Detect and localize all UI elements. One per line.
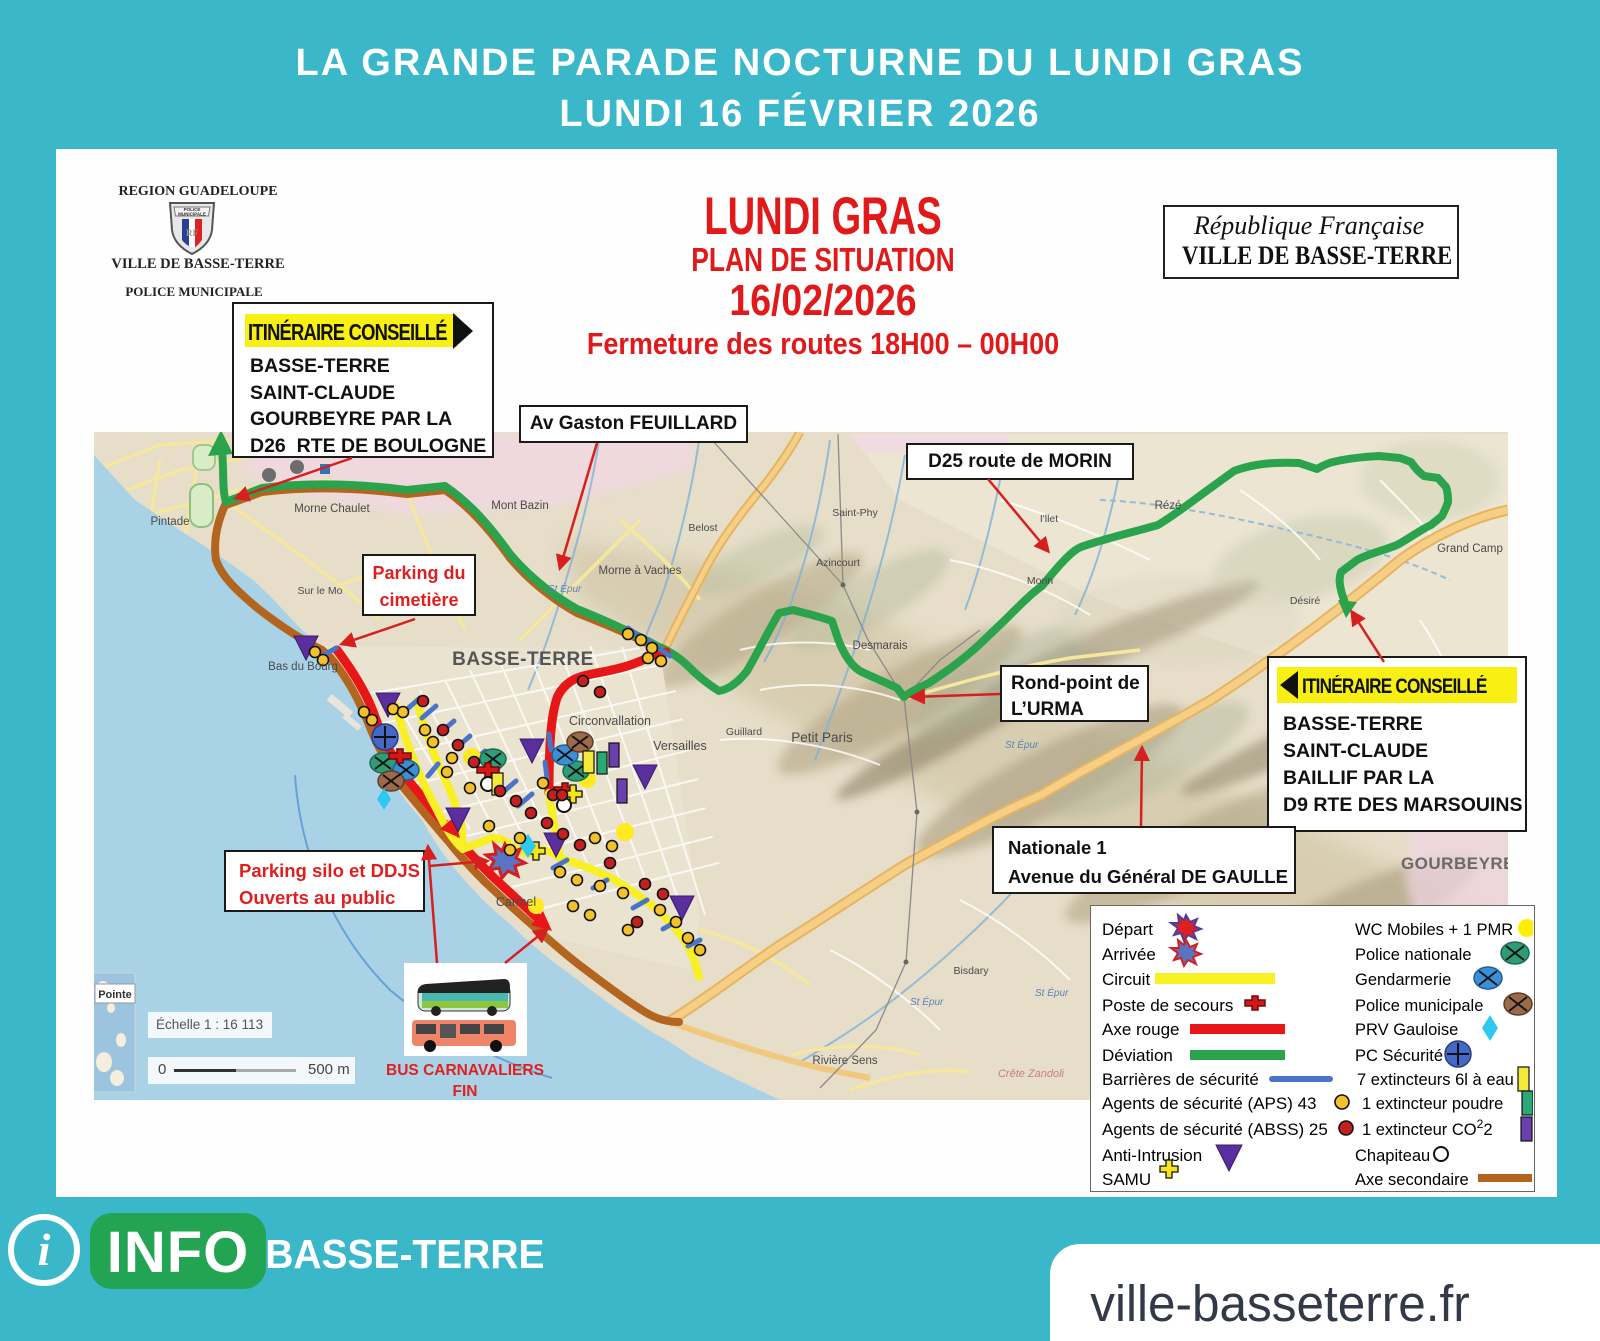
svg-text:Carmel: Carmel bbox=[496, 895, 536, 909]
svg-text:7 extincteurs 6l à eau: 7 extincteurs 6l à eau bbox=[1357, 1071, 1514, 1089]
svg-text:Rivière Sens: Rivière Sens bbox=[812, 1055, 877, 1067]
svg-text:Circonvallation: Circonvallation bbox=[569, 714, 651, 728]
svg-text:Versailles: Versailles bbox=[653, 739, 707, 753]
svg-text:Guillard: Guillard bbox=[726, 726, 762, 738]
svg-text:Belost: Belost bbox=[688, 522, 717, 534]
svg-text:Désiré: Désiré bbox=[1290, 595, 1321, 607]
svg-text:Pintade: Pintade bbox=[150, 516, 189, 528]
svg-text:St Épur: St Épur bbox=[548, 582, 582, 595]
svg-text:PRV Gauloise: PRV Gauloise bbox=[1355, 1021, 1458, 1039]
svg-text:Azincourt: Azincourt bbox=[816, 557, 860, 569]
svg-text:WC Mobiles + 1 PMR: WC Mobiles + 1 PMR bbox=[1355, 921, 1513, 939]
svg-text:Sur le Mo: Sur le Mo bbox=[298, 585, 343, 597]
svg-text:Anti-Intrusion: Anti-Intrusion bbox=[1102, 1146, 1202, 1165]
svg-text:PC Sécurité: PC Sécurité bbox=[1355, 1047, 1443, 1065]
svg-text:Police municipale: Police municipale bbox=[1355, 997, 1483, 1015]
svg-text:Bas du Bourg: Bas du Bourg bbox=[268, 661, 338, 673]
svg-text:St Épur: St Épur bbox=[910, 995, 944, 1008]
svg-text:Mont Bazin: Mont Bazin bbox=[491, 500, 549, 512]
svg-text:Grand Camp: Grand Camp bbox=[1437, 543, 1503, 555]
svg-text:Arrivée: Arrivée bbox=[1102, 945, 1156, 964]
svg-text:GOURBEYRE: GOURBEYRE bbox=[1401, 854, 1508, 873]
svg-text:RF: RF bbox=[186, 228, 198, 238]
svg-text:MUNICIPALE: MUNICIPALE bbox=[178, 212, 206, 217]
svg-text:Axe secondaire: Axe secondaire bbox=[1355, 1171, 1469, 1189]
svg-text:Saint-Phy: Saint-Phy bbox=[832, 507, 878, 519]
svg-text:BASSE-TERRE: BASSE-TERRE bbox=[452, 649, 594, 670]
svg-text:Bisdary: Bisdary bbox=[953, 965, 989, 977]
svg-text:1 extincteur CO22: 1 extincteur CO22 bbox=[1362, 1117, 1493, 1139]
svg-text:Rézé: Rézé bbox=[1155, 500, 1182, 512]
svg-text:Police nationale: Police nationale bbox=[1355, 946, 1472, 964]
svg-text:Gendarmerie: Gendarmerie bbox=[1355, 971, 1451, 989]
svg-text:Morin: Morin bbox=[1027, 575, 1053, 587]
svg-text:Poste de secours: Poste de secours bbox=[1102, 996, 1233, 1015]
svg-text:Barrières de sécurité: Barrières de sécurité bbox=[1102, 1070, 1259, 1089]
svg-text:Chapiteau: Chapiteau bbox=[1355, 1147, 1430, 1165]
svg-text:I'llet: I'llet bbox=[1040, 513, 1058, 525]
svg-text:Départ: Départ bbox=[1102, 920, 1153, 939]
svg-text:i: i bbox=[38, 1224, 51, 1275]
svg-text:Agents de sécurité (APS) 43: Agents de sécurité (APS) 43 bbox=[1102, 1094, 1317, 1113]
svg-text:Pointe: Pointe bbox=[98, 989, 132, 1001]
svg-text:Circuit: Circuit bbox=[1102, 970, 1150, 989]
svg-text:Déviation: Déviation bbox=[1102, 1046, 1173, 1065]
svg-text:St Épur: St Épur bbox=[1035, 986, 1069, 999]
svg-text:1 extincteur poudre: 1 extincteur poudre bbox=[1362, 1095, 1503, 1113]
svg-text:St Épur: St Épur bbox=[1005, 738, 1039, 751]
svg-text:Morne Chaulet: Morne Chaulet bbox=[294, 503, 370, 515]
svg-text:Morne à Vaches: Morne à Vaches bbox=[599, 565, 682, 577]
svg-text:Desmarais: Desmarais bbox=[853, 640, 908, 652]
svg-text:Axe rouge: Axe rouge bbox=[1102, 1020, 1180, 1039]
svg-text:SAMU: SAMU bbox=[1102, 1170, 1151, 1189]
svg-text:Agents de sécurité (ABSS) 25: Agents de sécurité (ABSS) 25 bbox=[1102, 1120, 1328, 1139]
svg-text:Crête Zandoli: Crête Zandoli bbox=[998, 1068, 1065, 1080]
svg-text:Petit Paris: Petit Paris bbox=[791, 730, 853, 745]
